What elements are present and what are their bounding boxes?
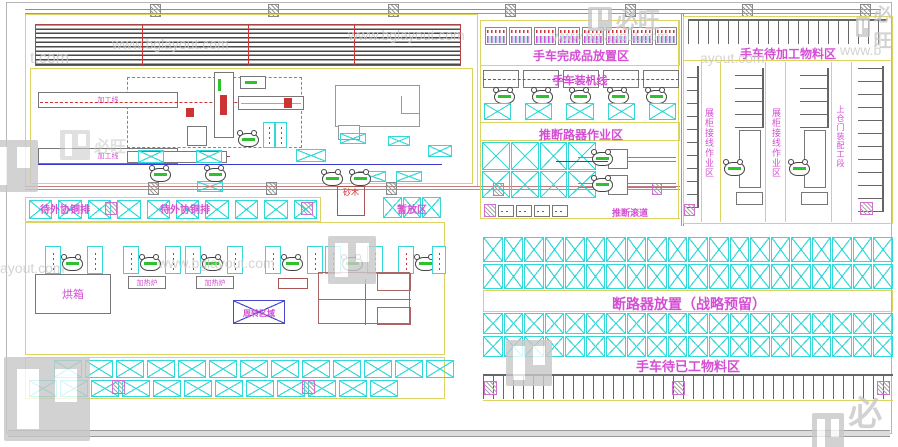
storage-cell bbox=[565, 237, 585, 262]
breaker-work-title: 推断路器作业区 bbox=[481, 126, 681, 143]
storage-cell bbox=[832, 313, 852, 334]
bay-divider bbox=[785, 62, 786, 222]
storage-cell bbox=[606, 313, 626, 334]
bay-divider bbox=[831, 62, 832, 222]
column-marker bbox=[301, 202, 313, 215]
breaker-pallet bbox=[482, 142, 510, 170]
storage-cell bbox=[85, 360, 113, 378]
staging-area-label: 暂放区 bbox=[383, 201, 441, 216]
storage-cell bbox=[524, 264, 544, 289]
storage-cell bbox=[524, 237, 544, 262]
bottom-wall bbox=[8, 430, 890, 437]
welder-machine bbox=[238, 133, 259, 147]
storage-cell bbox=[627, 264, 647, 289]
machine-indicator-red bbox=[220, 95, 227, 115]
storage-cell bbox=[606, 264, 626, 289]
storage-cell bbox=[483, 336, 503, 357]
storage-cell bbox=[853, 237, 873, 262]
storage-cell bbox=[791, 264, 811, 289]
storage-cell bbox=[565, 313, 585, 334]
welder-machine bbox=[282, 257, 303, 271]
storage-cell bbox=[586, 313, 606, 334]
roller-conveyor-1 bbox=[238, 96, 304, 110]
welding-cabinet bbox=[87, 246, 103, 274]
column-marker bbox=[386, 182, 397, 195]
conveyor-line bbox=[241, 103, 301, 104]
storage-cell bbox=[750, 237, 770, 262]
storage-cell bbox=[504, 264, 524, 289]
shelf-cell bbox=[534, 27, 556, 45]
storage-cell bbox=[771, 264, 791, 289]
partition-room bbox=[318, 272, 410, 324]
bay-divider bbox=[701, 62, 702, 222]
storage-cell bbox=[525, 103, 552, 120]
machine-control-box bbox=[240, 76, 266, 89]
storage-cell bbox=[873, 264, 893, 289]
storage-cell bbox=[524, 336, 544, 357]
vertical-rack bbox=[735, 68, 764, 128]
tall-cabinet bbox=[804, 130, 826, 188]
storage-cell bbox=[791, 313, 811, 334]
storage-cell bbox=[504, 336, 524, 357]
aux-machine-box bbox=[187, 126, 207, 146]
small-storage-cell bbox=[340, 133, 366, 144]
welder-machine bbox=[532, 90, 553, 104]
storage-cell bbox=[853, 336, 873, 357]
column-marker bbox=[672, 381, 685, 395]
welder-machine bbox=[646, 90, 667, 104]
breaker-storage-title-band: 断路器放置（战略预留） bbox=[483, 290, 893, 312]
small-storage-cell bbox=[388, 136, 410, 146]
welding-cabinet bbox=[45, 246, 61, 274]
shelf-cell bbox=[631, 27, 653, 45]
storage-cell bbox=[812, 336, 832, 357]
column-marker bbox=[112, 380, 125, 394]
storage-cell bbox=[147, 360, 175, 378]
column-marker bbox=[484, 381, 497, 395]
small-storage-cell bbox=[396, 171, 422, 182]
storage-cell bbox=[235, 200, 258, 219]
column-marker bbox=[877, 381, 890, 395]
storage-cell bbox=[771, 336, 791, 357]
room-notch bbox=[401, 96, 419, 114]
stopper-red bbox=[284, 98, 292, 108]
rack-divider bbox=[248, 25, 249, 65]
oven-label: 烘箱 bbox=[62, 286, 84, 302]
storage-cell bbox=[832, 336, 852, 357]
storage-cell bbox=[730, 313, 750, 334]
column-marker bbox=[148, 182, 159, 195]
small-storage-cell bbox=[296, 149, 326, 162]
storage-cell bbox=[426, 360, 454, 378]
machine-indicator-green bbox=[245, 81, 257, 84]
welder-machine bbox=[205, 168, 226, 182]
bottom-left-storage-band bbox=[25, 357, 445, 399]
column-marker bbox=[505, 4, 516, 17]
oven: 烘箱 bbox=[35, 274, 111, 314]
machine-line-1: 加工线 bbox=[38, 92, 178, 108]
rack-divider bbox=[142, 25, 143, 65]
breaker-storage-band-1 bbox=[483, 237, 893, 289]
stopper-red bbox=[186, 108, 194, 117]
welding-cabinet bbox=[325, 246, 341, 274]
welder-machine bbox=[322, 172, 343, 186]
machine-line-2-label: 加工线 bbox=[98, 151, 119, 161]
vertical-rack bbox=[800, 68, 829, 128]
rack-divider bbox=[354, 25, 355, 65]
storage-cell bbox=[709, 237, 729, 262]
heater-2-label: 加热炉 bbox=[205, 278, 226, 288]
zone-divider bbox=[480, 218, 680, 219]
vertical-rack bbox=[687, 66, 699, 208]
storage-cell bbox=[750, 313, 770, 334]
storage-cell bbox=[364, 360, 392, 378]
storage-cell bbox=[586, 264, 606, 289]
storage-cell bbox=[668, 336, 688, 357]
storage-cell bbox=[209, 360, 237, 378]
storage-cell bbox=[730, 336, 750, 357]
storage-cell bbox=[750, 264, 770, 289]
column-marker bbox=[684, 204, 695, 216]
copper-outsourcing-label-1: 待外协铜排 bbox=[40, 201, 90, 216]
saw-station: 砂木 bbox=[337, 186, 365, 216]
storage-cell bbox=[688, 237, 708, 262]
storage-cell bbox=[504, 237, 524, 262]
storage-cell bbox=[627, 313, 647, 334]
welder-machine bbox=[202, 257, 223, 271]
welder-machine bbox=[150, 168, 171, 182]
storage-cell bbox=[608, 103, 635, 120]
storage-cell bbox=[668, 313, 688, 334]
welding-cabinet bbox=[398, 246, 414, 274]
transfer-area-label: 周转区域 bbox=[233, 308, 285, 319]
control-cabinet bbox=[275, 122, 287, 148]
storage-cell bbox=[246, 380, 274, 397]
breaker-pallet bbox=[540, 171, 568, 199]
storage-cell bbox=[545, 264, 565, 289]
buffer-cell bbox=[516, 205, 532, 217]
welder-machine bbox=[140, 257, 161, 271]
shelf-cell bbox=[582, 27, 604, 45]
storage-cell bbox=[688, 336, 708, 357]
column-marker bbox=[266, 182, 277, 195]
storage-cell bbox=[709, 313, 729, 334]
storage-cell bbox=[339, 380, 367, 397]
storage-cell bbox=[545, 313, 565, 334]
storage-cell bbox=[791, 336, 811, 357]
storage-cell bbox=[566, 103, 593, 120]
blue-line-segment bbox=[556, 161, 608, 162]
machine-indicator-green bbox=[218, 79, 221, 91]
storage-cell bbox=[565, 264, 585, 289]
buffer-cell bbox=[498, 205, 514, 217]
storage-cell bbox=[606, 336, 626, 357]
storage-cell bbox=[178, 360, 206, 378]
busbar-storage-rack bbox=[35, 24, 461, 66]
storage-cell bbox=[771, 313, 791, 334]
welder-machine bbox=[789, 162, 810, 176]
vertical-rack bbox=[858, 66, 884, 212]
storage-cell bbox=[54, 360, 82, 378]
storage-cell bbox=[873, 336, 893, 357]
welder-machine bbox=[62, 257, 83, 271]
breaker-pallet bbox=[540, 142, 568, 170]
copper-outsourcing-label-2: 待外协铜排 bbox=[160, 201, 210, 216]
storage-cell bbox=[709, 336, 729, 357]
storage-cell bbox=[649, 103, 676, 120]
welding-cabinet bbox=[265, 246, 281, 274]
storage-cell bbox=[812, 264, 832, 289]
bay-divider bbox=[765, 62, 766, 222]
finished-products-zone: 手车完成品放置区 bbox=[480, 20, 680, 66]
welding-cabinet bbox=[165, 246, 181, 274]
blue-boundary-line bbox=[38, 164, 442, 165]
buffer-cell bbox=[534, 205, 550, 217]
partition-cell bbox=[377, 307, 411, 325]
storage-cell bbox=[730, 237, 750, 262]
storage-cell bbox=[370, 380, 398, 397]
storage-cell bbox=[29, 380, 57, 397]
shelf-cell bbox=[558, 27, 580, 45]
tall-cabinet bbox=[739, 130, 761, 188]
storage-cell bbox=[812, 237, 832, 262]
welder-machine bbox=[494, 90, 515, 104]
storage-cell bbox=[483, 264, 503, 289]
small-red-box bbox=[278, 278, 308, 289]
storage-cell bbox=[709, 264, 729, 289]
shelf-cell bbox=[606, 27, 628, 45]
breaker-work-zone-band: 推断路器作业区 bbox=[480, 122, 680, 141]
storage-cell bbox=[853, 264, 873, 289]
column-marker bbox=[484, 204, 496, 217]
storage-cell bbox=[750, 336, 770, 357]
storage-cell bbox=[524, 313, 544, 334]
saw-label: 砂木 bbox=[343, 187, 359, 198]
partition-wall bbox=[319, 299, 411, 300]
zone-divider bbox=[483, 400, 893, 401]
storage-cell bbox=[116, 360, 144, 378]
storage-cell bbox=[647, 237, 667, 262]
storage-cell bbox=[484, 103, 511, 120]
welder-machine bbox=[592, 152, 613, 166]
storage-cell bbox=[586, 336, 606, 357]
column-marker bbox=[860, 202, 873, 215]
storage-cell bbox=[117, 200, 140, 219]
shelf-cell bbox=[509, 27, 531, 45]
welder-machine bbox=[608, 90, 629, 104]
storage-cell bbox=[791, 237, 811, 262]
pallet-cell bbox=[196, 150, 222, 163]
storage-cell bbox=[730, 264, 750, 289]
storage-cell bbox=[277, 380, 305, 397]
column-marker bbox=[625, 4, 636, 17]
storage-cell bbox=[873, 237, 893, 262]
equipment-room-outline bbox=[335, 85, 420, 127]
welding-cabinet bbox=[185, 246, 201, 274]
storage-cell bbox=[545, 237, 565, 262]
storage-cell bbox=[688, 313, 708, 334]
storage-cell bbox=[483, 237, 503, 262]
welding-cabinet bbox=[432, 246, 446, 274]
pallet-cell bbox=[138, 150, 164, 163]
welder-machine bbox=[592, 178, 613, 192]
welder-machine bbox=[570, 90, 591, 104]
storage-cell bbox=[153, 380, 181, 397]
control-cabinet bbox=[263, 122, 275, 148]
storage-cell bbox=[240, 360, 268, 378]
breaker-storage-band-2 bbox=[483, 313, 893, 357]
storage-cell bbox=[771, 237, 791, 262]
storage-cell bbox=[122, 380, 150, 397]
column-marker bbox=[105, 202, 117, 215]
storage-cell bbox=[668, 264, 688, 289]
welding-cabinet bbox=[227, 246, 243, 274]
breaker-pallet bbox=[482, 171, 510, 199]
storage-cell bbox=[832, 237, 852, 262]
assembly-line-title: 手车装机线 bbox=[480, 72, 680, 88]
heater-2: 加热炉 bbox=[196, 276, 234, 289]
breaker-storage-title: 断路器放置（战略预留） bbox=[484, 294, 894, 314]
factory-layout-drawing: 加工线 加工线 待外协铜排 待外协铜 bbox=[0, 0, 898, 447]
storage-cell bbox=[504, 313, 524, 334]
incoming-rack-comb bbox=[688, 19, 887, 44]
small-storage-cell bbox=[428, 145, 452, 157]
zone-divider bbox=[683, 60, 893, 61]
storage-cell bbox=[853, 313, 873, 334]
heater-1-label: 加热炉 bbox=[137, 278, 158, 288]
storage-cell bbox=[647, 336, 667, 357]
storage-cell bbox=[333, 360, 361, 378]
storage-cell bbox=[668, 237, 688, 262]
storage-cell bbox=[873, 313, 893, 334]
welding-cabinet bbox=[307, 246, 323, 274]
storage-cell bbox=[302, 360, 330, 378]
storage-cell bbox=[812, 313, 832, 334]
machine-line-1-label: 加工线 bbox=[98, 95, 119, 105]
partition-wall bbox=[365, 279, 366, 325]
shelf-cell bbox=[655, 27, 677, 45]
bay-divider bbox=[720, 62, 721, 222]
shelf-cell bbox=[485, 27, 507, 45]
storage-cell bbox=[606, 237, 626, 262]
cabinet-wiring-label-2: 展柜接线作业区 bbox=[770, 108, 781, 192]
welder-machine bbox=[724, 162, 745, 176]
storage-cell bbox=[627, 336, 647, 357]
processed-material-rack bbox=[483, 374, 893, 399]
processed-material-title: 手车待已工物料区 bbox=[483, 356, 893, 375]
welding-cabinet bbox=[123, 246, 139, 274]
storage-cell bbox=[586, 237, 606, 262]
breaker-pallet bbox=[511, 142, 539, 170]
rack-end-cell bbox=[801, 192, 828, 205]
storage-cell bbox=[395, 360, 423, 378]
welder-machine bbox=[350, 172, 371, 186]
storage-cell bbox=[688, 264, 708, 289]
door-assembly-label: 上仓门装配工段 bbox=[835, 105, 846, 185]
storage-cell bbox=[184, 380, 212, 397]
storage-cell bbox=[215, 380, 243, 397]
storage-cell bbox=[627, 237, 647, 262]
welder-machine bbox=[342, 257, 363, 271]
storage-cell bbox=[483, 313, 503, 334]
staging-area: 暂放区 bbox=[383, 197, 441, 218]
bay-divider bbox=[851, 62, 852, 222]
heater-1: 加热炉 bbox=[128, 276, 166, 289]
storage-cell bbox=[264, 200, 287, 219]
storage-cell bbox=[271, 360, 299, 378]
storage-cell bbox=[832, 264, 852, 289]
column-marker bbox=[302, 380, 315, 394]
breaker-pallet bbox=[511, 171, 539, 199]
welding-cabinet bbox=[367, 246, 383, 274]
finished-products-title: 手车完成品放置区 bbox=[481, 47, 681, 64]
buffer-cell bbox=[552, 205, 568, 217]
main-machine-column bbox=[214, 72, 234, 138]
partition-cell bbox=[377, 273, 411, 291]
storage-cell bbox=[545, 336, 565, 357]
storage-cell bbox=[565, 336, 585, 357]
storage-cell bbox=[60, 380, 88, 397]
storage-cell bbox=[647, 313, 667, 334]
rack-end-cell bbox=[736, 192, 763, 205]
cabinet-wiring-label-1: 展柜接线作业区 bbox=[703, 108, 714, 192]
storage-cell bbox=[647, 264, 667, 289]
